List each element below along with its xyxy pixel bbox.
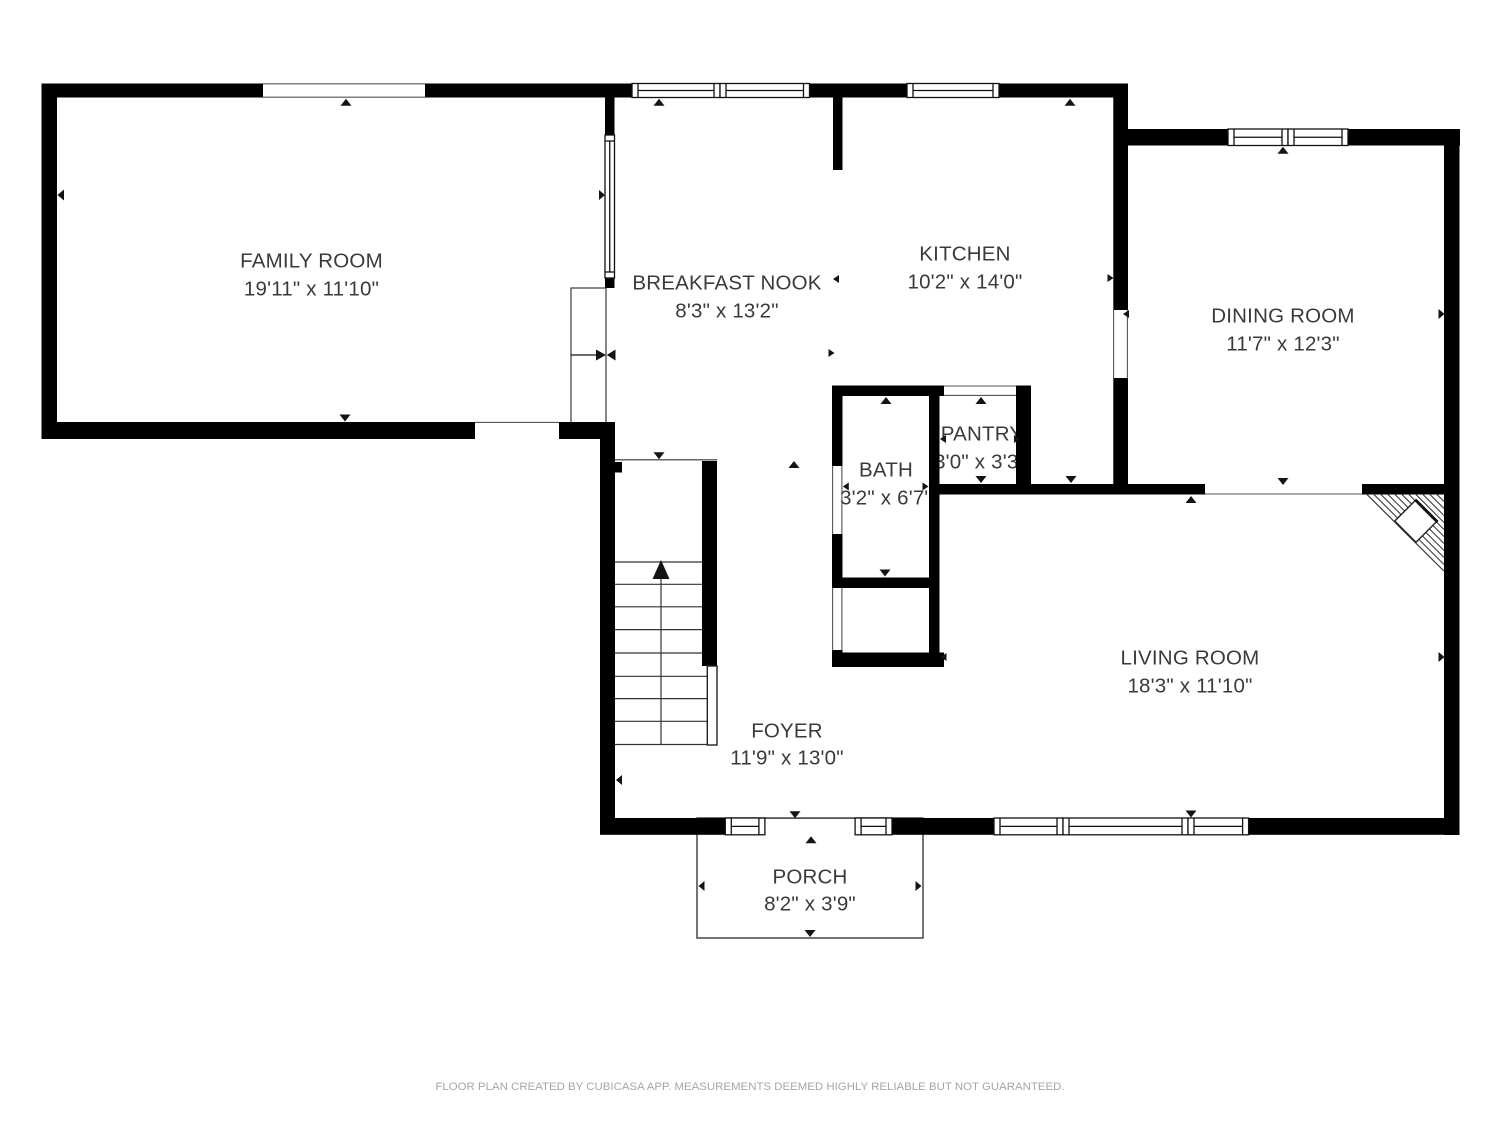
svg-text:FOYER: FOYER <box>751 719 823 742</box>
svg-text:FLOOR PLAN CREATED BY CUBICASA: FLOOR PLAN CREATED BY CUBICASA APP. MEAS… <box>435 1081 1064 1093</box>
svg-text:BREAKFAST NOOK: BREAKFAST NOOK <box>632 271 821 294</box>
svg-text:8'3" x 13'2": 8'3" x 13'2" <box>675 299 778 322</box>
svg-text:PANTRY: PANTRY <box>941 422 1024 445</box>
svg-text:19'11" x 11'10": 19'11" x 11'10" <box>244 277 379 300</box>
svg-text:3'0" x 3'3": 3'0" x 3'3" <box>934 450 1026 473</box>
svg-text:DINING ROOM: DINING ROOM <box>1211 304 1354 327</box>
svg-text:LIVING ROOM: LIVING ROOM <box>1121 646 1260 669</box>
svg-text:BATH: BATH <box>859 458 913 481</box>
svg-text:11'9" x 13'0": 11'9" x 13'0" <box>730 746 844 769</box>
svg-text:18'3" x 11'10": 18'3" x 11'10" <box>1127 674 1252 697</box>
svg-text:PORCH: PORCH <box>772 865 847 888</box>
svg-text:10'2" x 14'0": 10'2" x 14'0" <box>907 270 1022 293</box>
svg-text:3'2" x 6'7": 3'2" x 6'7" <box>840 486 932 509</box>
svg-text:11'7" x 12'3": 11'7" x 12'3" <box>1226 332 1340 355</box>
svg-text:KITCHEN: KITCHEN <box>919 242 1010 265</box>
svg-text:8'2" x 3'9": 8'2" x 3'9" <box>764 892 856 915</box>
svg-text:FAMILY ROOM: FAMILY ROOM <box>240 249 383 272</box>
